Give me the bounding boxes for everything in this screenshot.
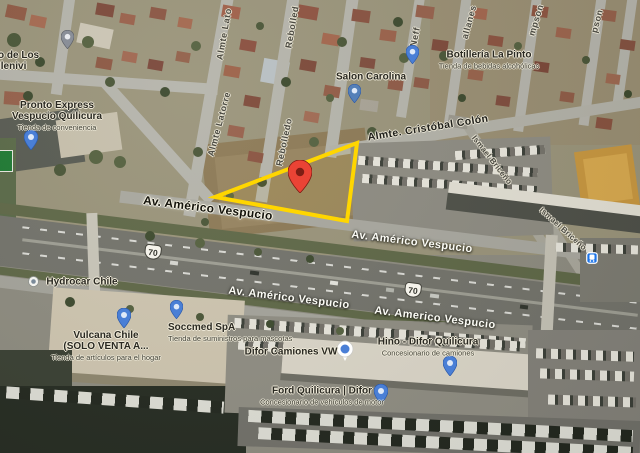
poi-botilleria-la-pinto[interactable]: Botillería La Pinto Tienda de bebidas al… bbox=[439, 50, 540, 71]
map-texture bbox=[487, 35, 503, 47]
tree-texture bbox=[336, 327, 344, 335]
map-texture bbox=[583, 153, 633, 205]
poi-hydrocar-chile[interactable]: Hydrocar Chile bbox=[46, 277, 117, 288]
poi-botilleria-title: Botillería La Pinto bbox=[439, 50, 540, 61]
tree-texture bbox=[326, 94, 334, 102]
salon-carolina-pin-icon[interactable] bbox=[348, 84, 361, 103]
poi-pronto-line1: Pronto Express bbox=[12, 100, 102, 111]
map-texture bbox=[330, 281, 338, 286]
poi-cut-label[interactable]: o de Los llenivi bbox=[0, 50, 39, 72]
poi-ford-title: Ford Quilicura | Difor bbox=[260, 386, 384, 397]
hino-pin-icon[interactable] bbox=[443, 356, 457, 376]
poi-hino-difor[interactable]: Hino - Difor Quilicura Concesionario de … bbox=[378, 337, 479, 358]
hydrocar-category-icon[interactable] bbox=[28, 276, 39, 287]
map-texture bbox=[605, 73, 620, 85]
tree-texture bbox=[254, 248, 262, 256]
tree-texture bbox=[256, 22, 264, 30]
poi-hino-subtitle: Concesionario de camiones bbox=[378, 349, 479, 358]
map-texture bbox=[359, 57, 375, 69]
map-texture bbox=[555, 27, 571, 39]
tree-texture bbox=[105, 77, 115, 87]
tree-texture bbox=[7, 33, 21, 47]
map-texture bbox=[359, 99, 378, 112]
map-texture bbox=[379, 29, 396, 42]
botilleria-pin-icon[interactable] bbox=[406, 45, 419, 64]
tree-texture bbox=[193, 147, 203, 157]
poi-difor-camiones[interactable]: Difor Camiones VW bbox=[245, 347, 338, 358]
poi-hydrocar-title: Hydrocar Chile bbox=[46, 277, 117, 288]
poi-vulcana-line1: Vulcana Chile bbox=[51, 330, 161, 341]
map-texture bbox=[351, 9, 370, 23]
map-texture bbox=[386, 288, 394, 293]
map-texture bbox=[619, 39, 635, 51]
tree-texture bbox=[89, 150, 103, 164]
poi-salon-carolina[interactable]: Salon Carolina bbox=[336, 72, 406, 83]
poi-cut-line2: llenivi bbox=[0, 61, 39, 72]
poi-botilleria-subtitle: Tienda de bebidas alcohólicas bbox=[439, 62, 540, 71]
satellite-map[interactable]: Almte Lato Almte Latorre Rebolled Reboll… bbox=[0, 0, 640, 453]
map-texture bbox=[415, 5, 434, 19]
poi-vulcana-line2: (SOLO VENTA A... bbox=[51, 341, 161, 352]
map-texture bbox=[595, 117, 612, 130]
pronto-express-pin-icon[interactable] bbox=[24, 130, 38, 150]
poi-soccmed-spa[interactable]: Soccmed SpA Tienda de suministros para m… bbox=[168, 322, 292, 343]
gray-place-pin-icon[interactable] bbox=[61, 30, 74, 49]
poi-cut-line1: o de Los bbox=[0, 50, 39, 61]
map-texture bbox=[170, 261, 178, 266]
map-texture bbox=[413, 77, 429, 89]
poi-pronto-line2: Vespucio Quilicura bbox=[12, 111, 102, 122]
tree-texture bbox=[281, 77, 291, 87]
poi-soccmed-subtitle: Tienda de suministros para mascotas bbox=[168, 334, 292, 343]
tree-texture bbox=[624, 90, 632, 98]
tree-texture bbox=[226, 192, 234, 200]
poi-pronto-subtitle: Tienda de conveniencia bbox=[12, 123, 102, 132]
tree-texture bbox=[393, 17, 403, 27]
bus-stop-icon[interactable] bbox=[586, 252, 598, 264]
tree-texture bbox=[160, 87, 170, 97]
vulcana-pin-icon[interactable] bbox=[117, 308, 131, 328]
poi-ford-quilicura[interactable]: Ford Quilicura | Difor Concesionario de … bbox=[260, 386, 384, 407]
difor-circle-pin-icon[interactable] bbox=[336, 340, 354, 362]
tree-texture bbox=[257, 177, 267, 187]
tree-texture bbox=[458, 94, 466, 102]
tree-texture bbox=[54, 164, 66, 176]
poi-difor-title: Difor Camiones VW bbox=[245, 347, 338, 358]
poi-soccmed-title: Soccmed SpA bbox=[168, 322, 292, 333]
tree-texture bbox=[306, 255, 314, 263]
tree-texture bbox=[191, 41, 201, 51]
map-texture bbox=[495, 95, 510, 107]
poi-vulcana-chile[interactable]: Vulcana Chile (SOLO VENTA A... Tienda de… bbox=[51, 330, 161, 362]
tree-texture bbox=[196, 313, 204, 321]
poi-hino-title: Hino - Difor Quilicura bbox=[378, 337, 479, 348]
tree-texture bbox=[582, 56, 590, 64]
map-texture bbox=[520, 305, 528, 310]
map-texture bbox=[467, 69, 483, 81]
soccmed-pin-icon[interactable] bbox=[170, 300, 183, 319]
map-texture bbox=[559, 91, 574, 103]
poi-ford-subtitle: Concesionario de vehículos de motor bbox=[260, 398, 384, 407]
poi-vulcana-subtitle: Tienda de artículos para el hogar bbox=[51, 353, 161, 362]
tree-texture bbox=[195, 238, 205, 248]
tree-texture bbox=[82, 36, 94, 48]
highway-sign bbox=[0, 150, 13, 172]
red-map-marker[interactable] bbox=[288, 160, 312, 193]
tree-texture bbox=[65, 297, 75, 307]
tree-texture bbox=[309, 137, 319, 147]
tree-texture bbox=[201, 218, 209, 226]
poi-pronto-express[interactable]: Pronto Express Vespucio Quilicura Tienda… bbox=[12, 100, 102, 132]
tree-texture bbox=[337, 37, 347, 47]
poi-salon-title: Salon Carolina bbox=[336, 72, 406, 83]
tree-texture bbox=[145, 231, 155, 241]
tree-texture bbox=[114, 156, 126, 168]
